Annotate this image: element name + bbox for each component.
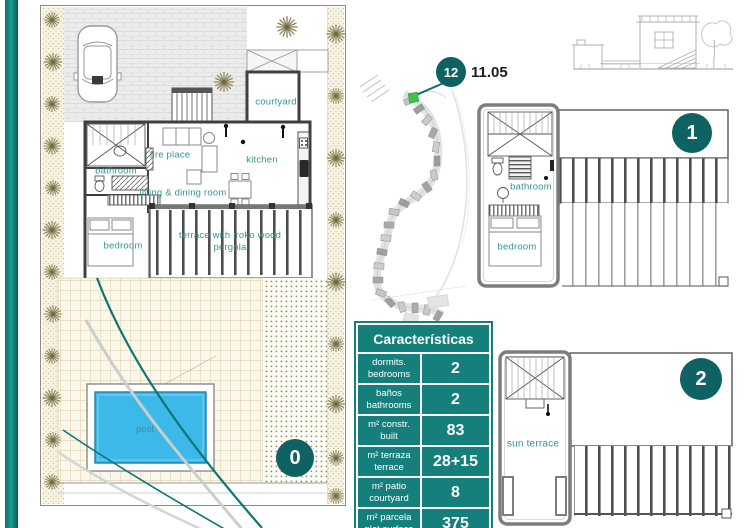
label-kitchen: kitchen bbox=[246, 155, 278, 166]
label-living-dining: living & dining room bbox=[140, 188, 227, 199]
table-row: m² patio courtyard 8 bbox=[358, 478, 489, 507]
characteristics-table: Características dormits. bedrooms 2 baño… bbox=[354, 321, 493, 528]
floor-badge-1: 1 bbox=[672, 113, 712, 153]
label-courtyard: courtyard bbox=[255, 97, 296, 108]
elevation-sketch bbox=[572, 16, 733, 69]
ground-floor-plan bbox=[41, 6, 346, 506]
table-row: baños bathrooms 2 bbox=[358, 385, 489, 414]
row-value: 83 bbox=[422, 416, 489, 445]
stairs-ground bbox=[172, 88, 212, 122]
row-value: 2 bbox=[422, 354, 489, 383]
label-sun-terrace: sun terrace bbox=[507, 439, 559, 450]
label-terrace: terrace with iroko wood pergola bbox=[175, 230, 285, 254]
elevation-value: 11.05 bbox=[471, 64, 508, 81]
label-fireplace: fire place bbox=[150, 150, 191, 161]
row-label-secondary: bedrooms bbox=[359, 369, 419, 381]
row-label-primary: baños bbox=[359, 388, 419, 400]
row-label-secondary: courtyard bbox=[359, 493, 419, 505]
table-row: dormits. bedrooms 2 bbox=[358, 354, 489, 383]
floor-badge-0: 0 bbox=[276, 439, 314, 477]
table-row: m² terraza terrace 28+15 bbox=[358, 447, 489, 476]
row-value: 375 bbox=[422, 509, 489, 528]
row-label-primary: m² parcela bbox=[359, 512, 419, 524]
label-bathroom-ground: bathroom bbox=[95, 166, 137, 177]
plot-number-badge: 12 bbox=[436, 57, 466, 87]
row-label-secondary: built bbox=[359, 431, 419, 443]
row-label-primary: dormits. bbox=[359, 357, 419, 369]
plot-marker-icon bbox=[408, 92, 418, 102]
row-label-primary: m² terraza bbox=[359, 450, 419, 462]
row-value: 28+15 bbox=[422, 447, 489, 476]
label-bathroom-first: bathroom bbox=[510, 182, 552, 193]
table-title: Características bbox=[358, 325, 489, 352]
row-label-secondary: bathrooms bbox=[359, 400, 419, 412]
brochure-page: courtyard fire place kitchen bathroom li… bbox=[0, 0, 756, 528]
floor-badge-2: 2 bbox=[680, 358, 722, 400]
label-pool: pool bbox=[136, 424, 154, 434]
label-bedroom-first: bedroom bbox=[498, 242, 537, 253]
location-map bbox=[360, 75, 469, 330]
label-bedroom-ground: bedroom bbox=[104, 241, 143, 252]
row-value: 8 bbox=[422, 478, 489, 507]
row-label-primary: m² patio bbox=[359, 481, 419, 493]
row-label-secondary: plot surface bbox=[359, 524, 419, 528]
car-top-view-icon bbox=[74, 26, 121, 102]
row-label-secondary: terrace bbox=[359, 462, 419, 474]
table-row: m² parcela plot surface 375 bbox=[358, 509, 489, 528]
row-label-primary: m² constr. bbox=[359, 419, 419, 431]
row-value: 2 bbox=[422, 385, 489, 414]
table-row: m² constr. built 83 bbox=[358, 416, 489, 445]
